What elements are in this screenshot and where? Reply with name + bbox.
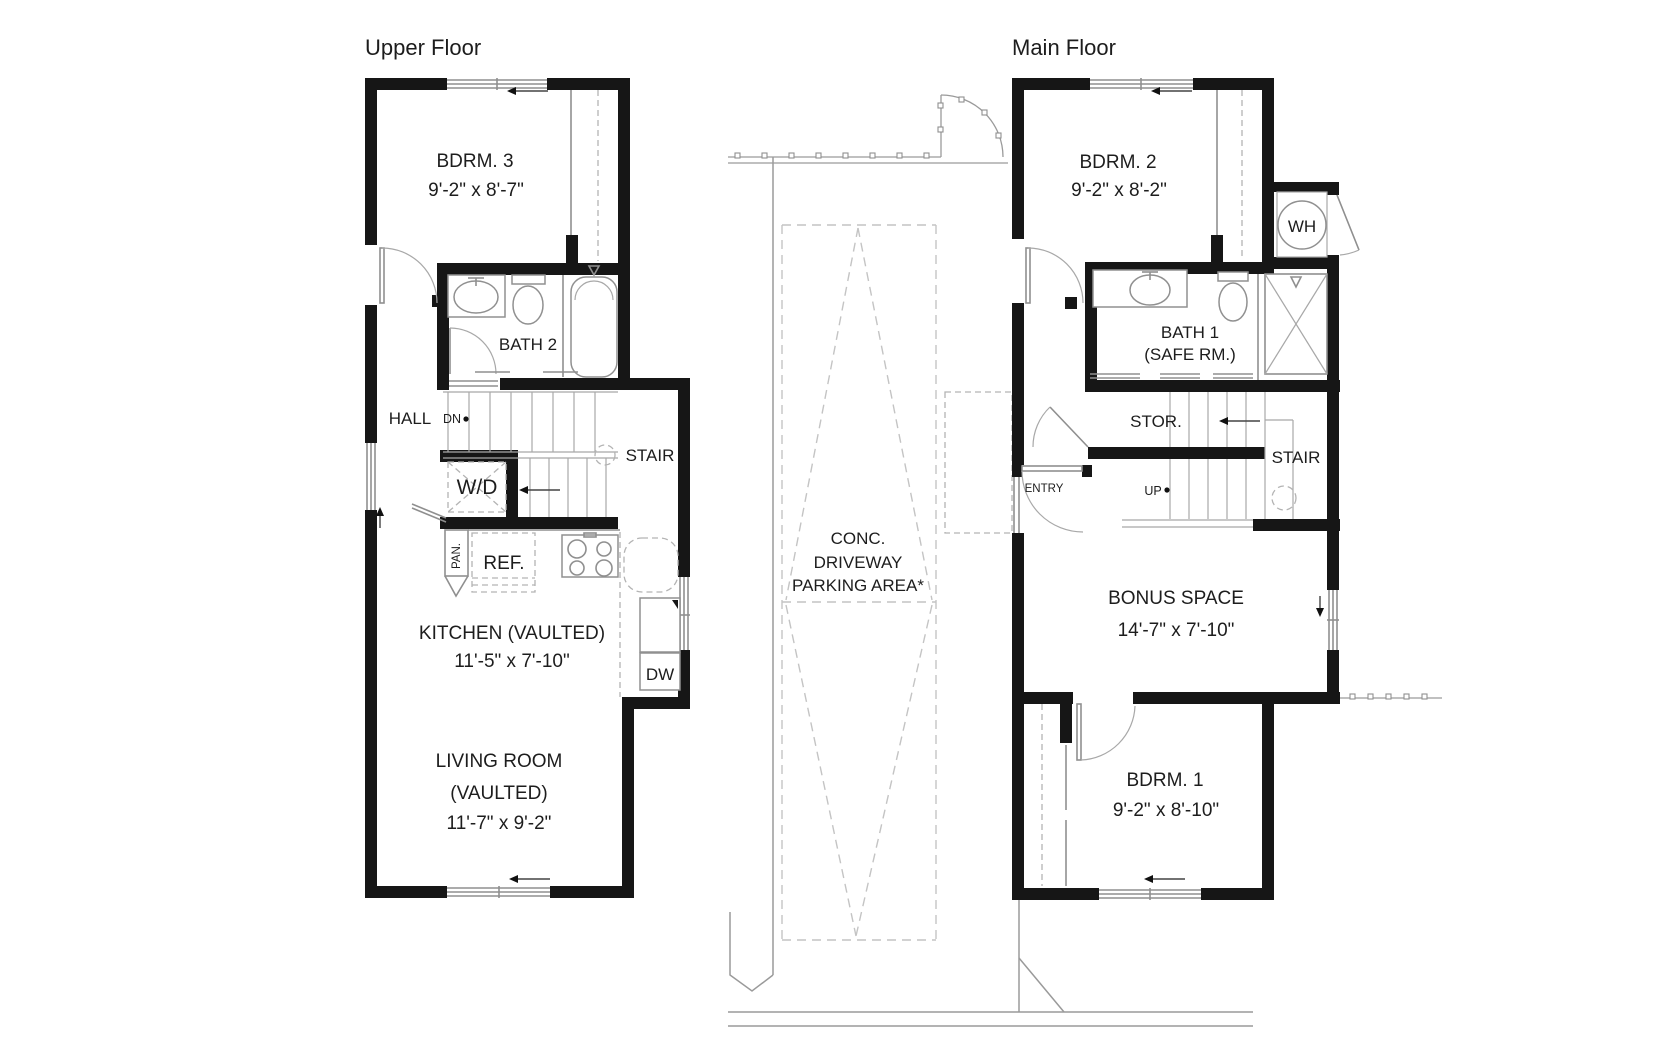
bonus-window (1327, 590, 1339, 650)
toilet-tank (512, 275, 545, 284)
toilet-icon (1219, 283, 1247, 321)
corner-counter (624, 538, 678, 592)
hall-window (367, 443, 375, 510)
bdrm1-window (1099, 888, 1201, 900)
bdrm2-door (1026, 248, 1083, 303)
arrow-icon (1144, 875, 1153, 883)
shower-icon (1265, 274, 1327, 374)
pantry-door (412, 504, 446, 522)
bdrm1-dims: 9'-2" x 8'-10" (1113, 800, 1219, 821)
bdrm2-dims: 9'-2" x 8'-2" (1071, 180, 1167, 201)
shower-head-icon (1291, 277, 1301, 287)
stair-direction-arrow (1219, 417, 1228, 425)
dw-label: DW (646, 665, 674, 684)
patio-dashed-outline (945, 392, 1012, 533)
upper-floor-title: Upper Floor (365, 35, 481, 60)
arrow-icon (1316, 608, 1324, 617)
fence-right (1340, 694, 1442, 699)
stair-direction-arrow (519, 486, 528, 494)
stove-icon (562, 533, 618, 577)
up-dot (1164, 487, 1169, 492)
main-floor-title: Main Floor (1012, 35, 1116, 60)
entry-label: ENTRY (1025, 483, 1064, 495)
bath1-opening-marks (1090, 374, 1253, 378)
entry-door (1022, 466, 1083, 532)
arrow-icon (509, 875, 518, 883)
hall-label: HALL (389, 409, 432, 428)
bdrm3-window (447, 78, 547, 90)
bath1-label: BATH 1 (1161, 323, 1219, 342)
kitchen-sink-icon (640, 598, 680, 652)
main-stair-label: STAIR (1272, 448, 1321, 467)
up-label: UP (1144, 484, 1161, 498)
driveway-label-driveway: DRIVEWAY (814, 553, 903, 572)
toilet-tank (1218, 272, 1248, 281)
ref-label: REF. (483, 553, 524, 574)
floorplan-canvas: CONC. DRIVEWAY PARKING AREA* Upper Floor (0, 0, 1680, 1050)
arrow-icon (376, 507, 384, 516)
driveway-label-conc: CONC. (831, 529, 886, 548)
bdrm3-dims: 9'-2" x 8'-7" (428, 180, 524, 201)
stor-door (1033, 407, 1088, 447)
bath2-fixtures (448, 266, 617, 377)
living-label-1: LIVING ROOM (436, 751, 563, 772)
bath2-door (449, 328, 498, 386)
bdrm1-label: BDRM. 1 (1126, 770, 1203, 791)
wh-closet-door (1337, 195, 1359, 255)
living-label-2: (VAULTED) (450, 783, 547, 804)
fence-top (728, 95, 1008, 163)
walkway-diagonal (1019, 958, 1064, 1012)
pantry-label: PAN. (451, 543, 463, 569)
bdrm3-label: BDRM. 3 (436, 151, 513, 172)
stor-label: STOR. (1130, 412, 1182, 431)
dn-label: DN (443, 412, 461, 426)
bdrm2-window (1090, 78, 1193, 90)
driveway-entrance-chevron (730, 912, 773, 991)
bdrm3-door (380, 248, 437, 303)
floorplan-drawing: CONC. DRIVEWAY PARKING AREA* Upper Floor (0, 0, 1680, 1050)
bathtub-icon (571, 277, 617, 377)
bath2-label: BATH 2 (499, 335, 557, 354)
driveway-label-parking: PARKING AREA* (792, 576, 924, 595)
bdrm2-closet (1217, 90, 1242, 260)
living-dims: 11'-7" x 9'-2" (447, 813, 552, 834)
bath1-safe-label: (SAFE RM.) (1144, 345, 1236, 364)
wh-label: WH (1288, 217, 1316, 236)
living-room-window (447, 886, 550, 898)
wd-label: W/D (457, 476, 498, 499)
bdrm1-door (1077, 704, 1135, 760)
upper-stair-label: STAIR (626, 446, 675, 465)
main-floor-plan: Main Floor (1012, 35, 1359, 900)
kitchen-label: KITCHEN (VAULTED) (419, 623, 605, 644)
kitchen-dims: 11'-5" x 7'-10" (454, 651, 569, 672)
bonus-label: BONUS SPACE (1108, 588, 1244, 609)
bdrm2-label: BDRM. 2 (1079, 152, 1156, 173)
upper-floor-windows (367, 78, 690, 898)
upper-floor-plan: Upper Floor (365, 35, 690, 898)
dn-dot (463, 416, 468, 421)
bonus-dims: 14'-7" x 7'-10" (1118, 620, 1235, 641)
toilet-icon (513, 286, 543, 324)
